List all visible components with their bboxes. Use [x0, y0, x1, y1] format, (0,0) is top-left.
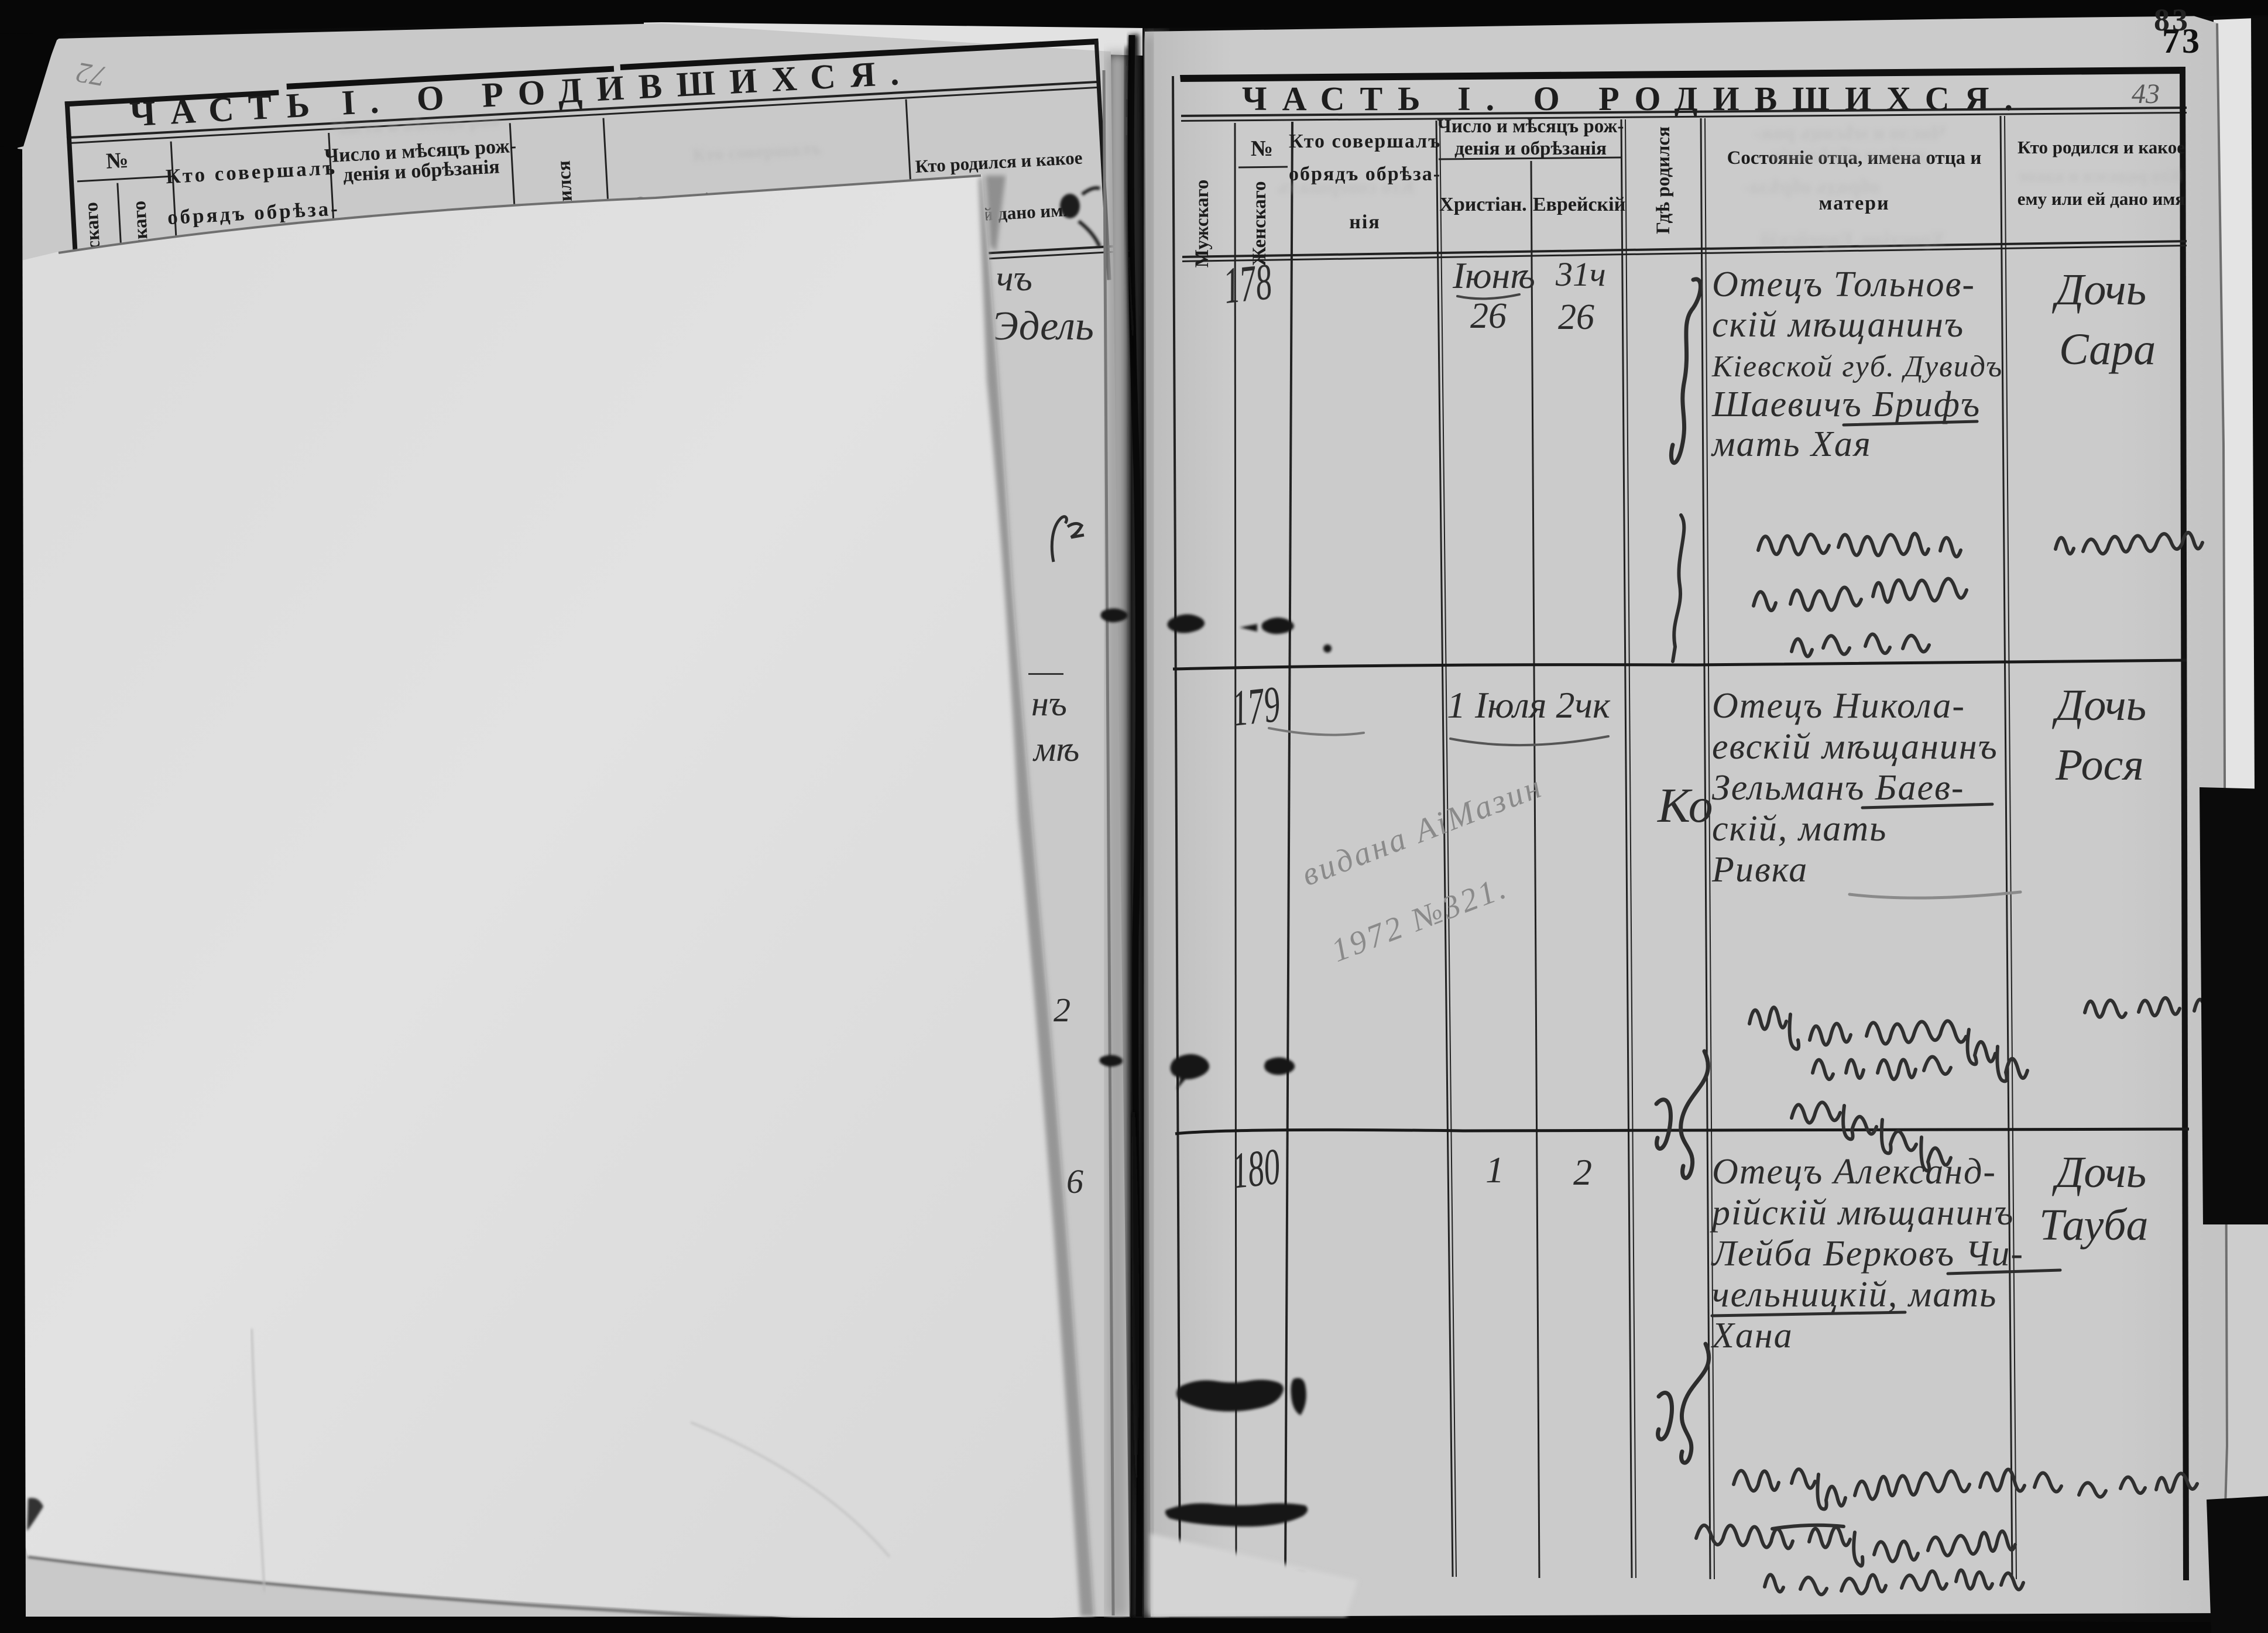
svg-text:обрядъ обрѣза-: обрядъ обрѣза-: [1744, 176, 1879, 198]
svg-text:2: 2: [1054, 991, 1070, 1029]
svg-text:Кто совершалъ: Кто совершалъ: [1289, 131, 1441, 152]
svg-text:Дочь: Дочь: [2052, 681, 2146, 730]
svg-text:Еврейскій: Еврейскій: [1533, 194, 1625, 215]
svg-text:скій мѣщанинъ: скій мѣщанинъ: [1712, 305, 1964, 345]
svg-text:Шаевичъ Брифъ: Шаевичъ Брифъ: [1711, 385, 1981, 424]
svg-text:Рося: Рося: [2055, 740, 2144, 790]
svg-text:2: 2: [1573, 1151, 1592, 1193]
svg-text:Христіан.: Христіан.: [1439, 194, 1526, 215]
svg-text:178: 178: [1221, 253, 1275, 314]
svg-text:Мужскаго: Мужскаго: [1192, 180, 1213, 267]
svg-text:Ривка: Ривка: [1711, 850, 1808, 890]
svg-text:Эдель: Эдель: [991, 304, 1094, 349]
svg-text:Отецъ Никола-: Отецъ Никола-: [1712, 686, 1965, 726]
svg-text:Кіевской губ. Дувидъ: Кіевской губ. Дувидъ: [1711, 350, 2003, 383]
svg-text:180: 180: [1229, 1138, 1283, 1199]
svg-text:Кто родился и какое: Кто родился и какое: [2019, 166, 2181, 186]
svg-text:Ко: Ко: [1657, 778, 1713, 833]
svg-text:денія и обрѣзанія: денія и обрѣзанія: [1771, 145, 1928, 166]
svg-text:179: 179: [1229, 675, 1283, 737]
svg-text:72: 72: [74, 56, 108, 94]
svg-text:№: №: [1251, 136, 1273, 161]
svg-text:№: №: [105, 148, 129, 174]
svg-text:Отецъ Александ-: Отецъ Александ-: [1712, 1152, 1996, 1192]
svg-text:Число и мѣсяцъ рож-: Число и мѣсяцъ рож-: [1437, 116, 1624, 137]
svg-text:нъ: нъ: [1031, 684, 1067, 723]
svg-text:26: 26: [1470, 296, 1507, 336]
svg-text:Хана: Хана: [1710, 1316, 1793, 1356]
svg-text:Кто родился и какое: Кто родился и какое: [2017, 137, 2185, 157]
svg-text:1: 1: [1485, 1149, 1504, 1191]
svg-text:чельницкій, мать: чельницкій, мать: [1712, 1275, 1997, 1315]
svg-text:скій, мать: скій, мать: [1712, 809, 1887, 849]
svg-text:Гдѣ родился: Гдѣ родился: [1653, 126, 1674, 234]
svg-text:26: 26: [1558, 297, 1594, 337]
svg-text:рійскій мѣщанинъ: рійскій мѣщанинъ: [1710, 1193, 2014, 1233]
svg-text:мать Хая: мать Хая: [1711, 424, 1872, 464]
svg-text:Дочь: Дочь: [2052, 265, 2146, 314]
svg-text:43: 43: [2132, 78, 2160, 109]
svg-text:Дочь: Дочь: [2052, 1148, 2146, 1197]
svg-text:мѣ: мѣ: [1032, 730, 1079, 769]
svg-text:Іюнѣ: Іюнѣ: [1452, 255, 1535, 296]
svg-text:31ч: 31ч: [1555, 255, 1606, 293]
svg-text:1 Іюля 2чк: 1 Іюля 2чк: [1447, 684, 1611, 726]
svg-text:Отецъ Тольнов-: Отецъ Тольнов-: [1712, 265, 1975, 304]
svg-text:ему или ей дано имя: ему или ей дано имя: [2017, 188, 2185, 209]
svg-text:Христіан. Еврейскій: Христіан. Еврейскій: [1760, 229, 1945, 251]
svg-text:Зельманъ Баев-: Зельманъ Баев-: [1712, 768, 1965, 808]
svg-text:евскій мѣщанинъ: евскій мѣщанинъ: [1712, 727, 1998, 767]
svg-text:чъ: чъ: [996, 259, 1032, 299]
svg-text:73: 73: [2162, 22, 2202, 60]
svg-text:Сара: Сара: [2059, 325, 2156, 374]
svg-text:Число и мѣсяцъ рож-: Число и мѣсяцъ рож-: [1754, 122, 1946, 144]
svg-text:Лейба Берковъ Чи-: Лейба Берковъ Чи-: [1711, 1234, 2024, 1274]
svg-text:Тауба: Тауба: [2039, 1200, 2148, 1250]
svg-text:денія и обрѣзанія: денія и обрѣзанія: [1454, 138, 1607, 159]
svg-text:нія: нія: [1349, 211, 1380, 233]
svg-text:Кто совершалъ: Кто совершалъ: [1278, 176, 1415, 198]
svg-text:6: 6: [1066, 1162, 1083, 1200]
